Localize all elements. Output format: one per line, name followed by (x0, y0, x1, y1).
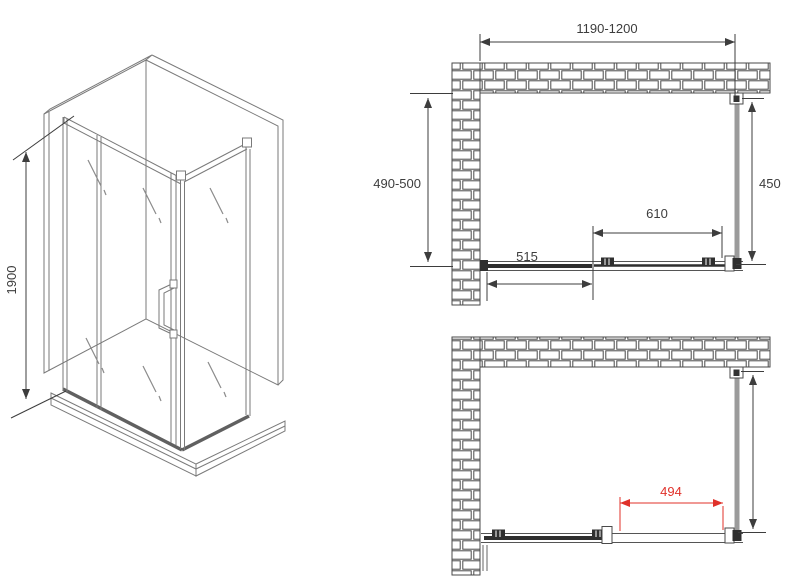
side-panel-label: 450 (759, 176, 781, 191)
brick-wall-top (452, 337, 770, 367)
door-edge-plate (602, 527, 612, 544)
wall-bracket (730, 93, 743, 104)
opening-label: 494 (660, 484, 682, 499)
brick-wall-left (452, 63, 480, 305)
wall-bracket (730, 367, 743, 378)
roller-bracket (492, 530, 505, 538)
fixed-panel-label: 515 (516, 249, 538, 264)
roller-bracket (601, 258, 614, 266)
overall-width-label: 1190-1200 (576, 21, 637, 36)
roller-bracket (702, 258, 715, 266)
door-panel-label: 610 (646, 206, 668, 221)
brick-wall-top (452, 63, 770, 93)
shower-enclosure-technical-drawing: 1900 (0, 0, 800, 583)
height-label: 1900 (4, 266, 19, 295)
brick-wall-left (452, 337, 480, 575)
depth-label: 490-500 (373, 176, 421, 191)
